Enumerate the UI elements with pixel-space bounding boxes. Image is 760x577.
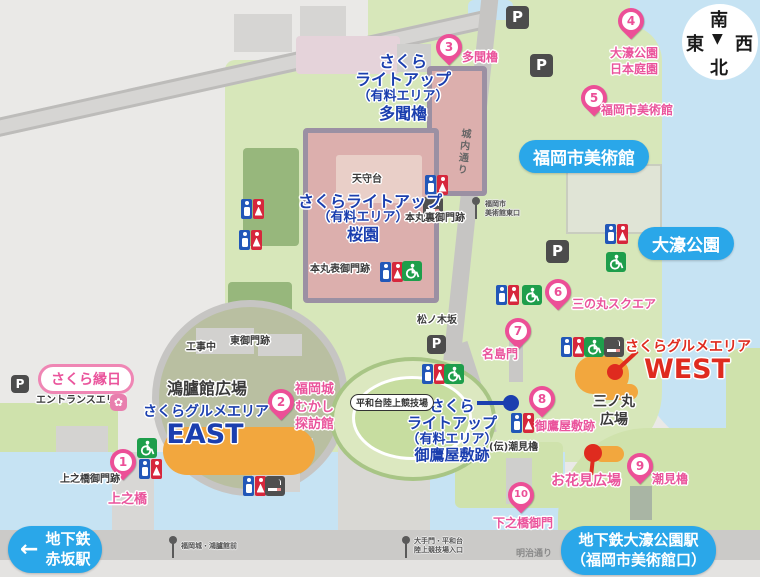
higashi-gomon-label: 東御門跡: [230, 336, 270, 348]
ohanami-hiroba-label: お花見広場: [551, 473, 621, 490]
toilet-icon: [605, 224, 628, 244]
map-pin-6: 6: [544, 278, 572, 314]
pin3-label: 多聞櫓: [462, 50, 498, 64]
compass-west: 西: [735, 30, 753, 56]
toilet-icon: [241, 199, 264, 219]
matsunoki-saka-label: 松ノ木坂: [417, 315, 457, 327]
parking-icon: P: [530, 54, 553, 77]
meiji-dori-label: 明治通り: [516, 549, 552, 560]
sannomaru-hiroba-label: 三ノ丸広場: [590, 394, 638, 429]
map-pin-8: 8: [528, 385, 556, 421]
toilet-icon: [561, 337, 584, 357]
bus-stop-icon: [471, 197, 481, 221]
map-pin-10: 10: [507, 481, 535, 517]
under-construction-label: 工事中: [186, 342, 216, 354]
kaminohashi-gomon-label: 上之橋御門跡: [60, 474, 120, 486]
ohori-park-badge: 大濠公園: [638, 227, 734, 260]
park-festival-map: P P P P P 福岡市美術館東口 福岡城・鴻臚館前 大手門・平和台陸上競技場…: [0, 0, 760, 577]
pin10-label: 下之橋御門: [493, 516, 553, 530]
bus-stop-icon: [401, 536, 411, 560]
sakura-ennichi-badge: さくら縁日: [38, 364, 134, 394]
smoking-area-icon: [265, 476, 285, 496]
lightup-tamon-label: さくら ライトアップ （有料エリア） 多聞櫓: [353, 53, 453, 123]
pin1-label: 上之橋: [108, 492, 147, 508]
map-pin-9: 9: [626, 452, 654, 488]
shiomiyagura-block: [630, 486, 652, 520]
toilet-icon: [139, 459, 162, 479]
akasaka-station-badge: ← 地下鉄赤坂駅: [8, 526, 102, 573]
honmaru-ura-gomon-label: 本丸裏御門跡: [405, 213, 465, 225]
ohori-koen-station-badge: 地下鉄大濠公園駅（福岡市美術館口）: [561, 526, 716, 575]
compass-north: 北: [710, 54, 728, 80]
smoking-area-icon: [604, 337, 624, 357]
museum-badge: 福岡市美術館: [519, 140, 649, 173]
map-pin-4: 4: [617, 7, 645, 43]
toilet-icon: [496, 285, 519, 305]
korokan-hiroba-label: 鴻臚館広場: [167, 379, 247, 398]
den-shiomiyagura-label: (伝)潮見櫓: [489, 442, 538, 454]
pin8-label: 御鷹屋敷跡: [535, 419, 595, 433]
bus-stop-label: 福岡市美術館東口: [485, 200, 520, 218]
bus-stop-label: 大手門・平和台陸上競技場入口: [414, 537, 463, 555]
gourmet-east-label: さくらグルメエリア EAST: [143, 404, 267, 449]
toilet-icon: [422, 364, 445, 384]
honmaru-omote-gomon-label: 本丸表御門跡: [310, 264, 370, 276]
compass-south: 南: [710, 6, 728, 32]
building-block: [234, 14, 292, 52]
heiwadai-stadium-label: 平和台陸上競技場: [350, 394, 434, 411]
compass-pointer-icon: ▼: [712, 31, 723, 47]
bus-stop-icon: [168, 536, 178, 560]
wheelchair-icon: [444, 364, 464, 384]
wheelchair-icon: [606, 252, 626, 272]
wheelchair-icon: [402, 261, 422, 281]
tenshudai-label: 天守台: [352, 174, 382, 186]
toilet-icon: [239, 230, 262, 250]
sakura-flower-icon: ✿: [110, 394, 127, 411]
parking-icon: P: [546, 240, 569, 263]
building-block: [56, 426, 108, 452]
gourmet-west-label: さくらグルメエリア WEST: [625, 339, 749, 384]
toilet-icon: [380, 262, 403, 282]
pin6-label: 三の丸スクエア: [572, 297, 656, 311]
pin4-label: 大濠公園日本庭園: [610, 46, 658, 77]
pin5-label: 福岡市美術館: [601, 103, 673, 117]
parking-icon: P: [506, 6, 529, 29]
map-pin-2: 2: [267, 388, 295, 424]
compass-east: 東: [686, 30, 704, 56]
bus-stop-label: 福岡城・鴻臚館前: [181, 542, 237, 551]
compass: 南 東 ▼ 西 北: [682, 4, 758, 80]
parking-icon: P: [427, 335, 446, 354]
building-block: [300, 6, 346, 36]
toilet-icon: [243, 476, 266, 496]
parking-icon: P: [11, 375, 29, 393]
wheelchair-icon: [584, 337, 604, 357]
gourmet-west-dot: [607, 364, 623, 380]
left-arrow-icon: ←: [20, 537, 38, 562]
pin2-label: 福岡城むかし探訪館: [295, 381, 334, 434]
pin7-label: 名島門: [482, 347, 518, 361]
wheelchair-icon: [522, 285, 542, 305]
pin9-label: 潮見櫓: [652, 472, 688, 486]
